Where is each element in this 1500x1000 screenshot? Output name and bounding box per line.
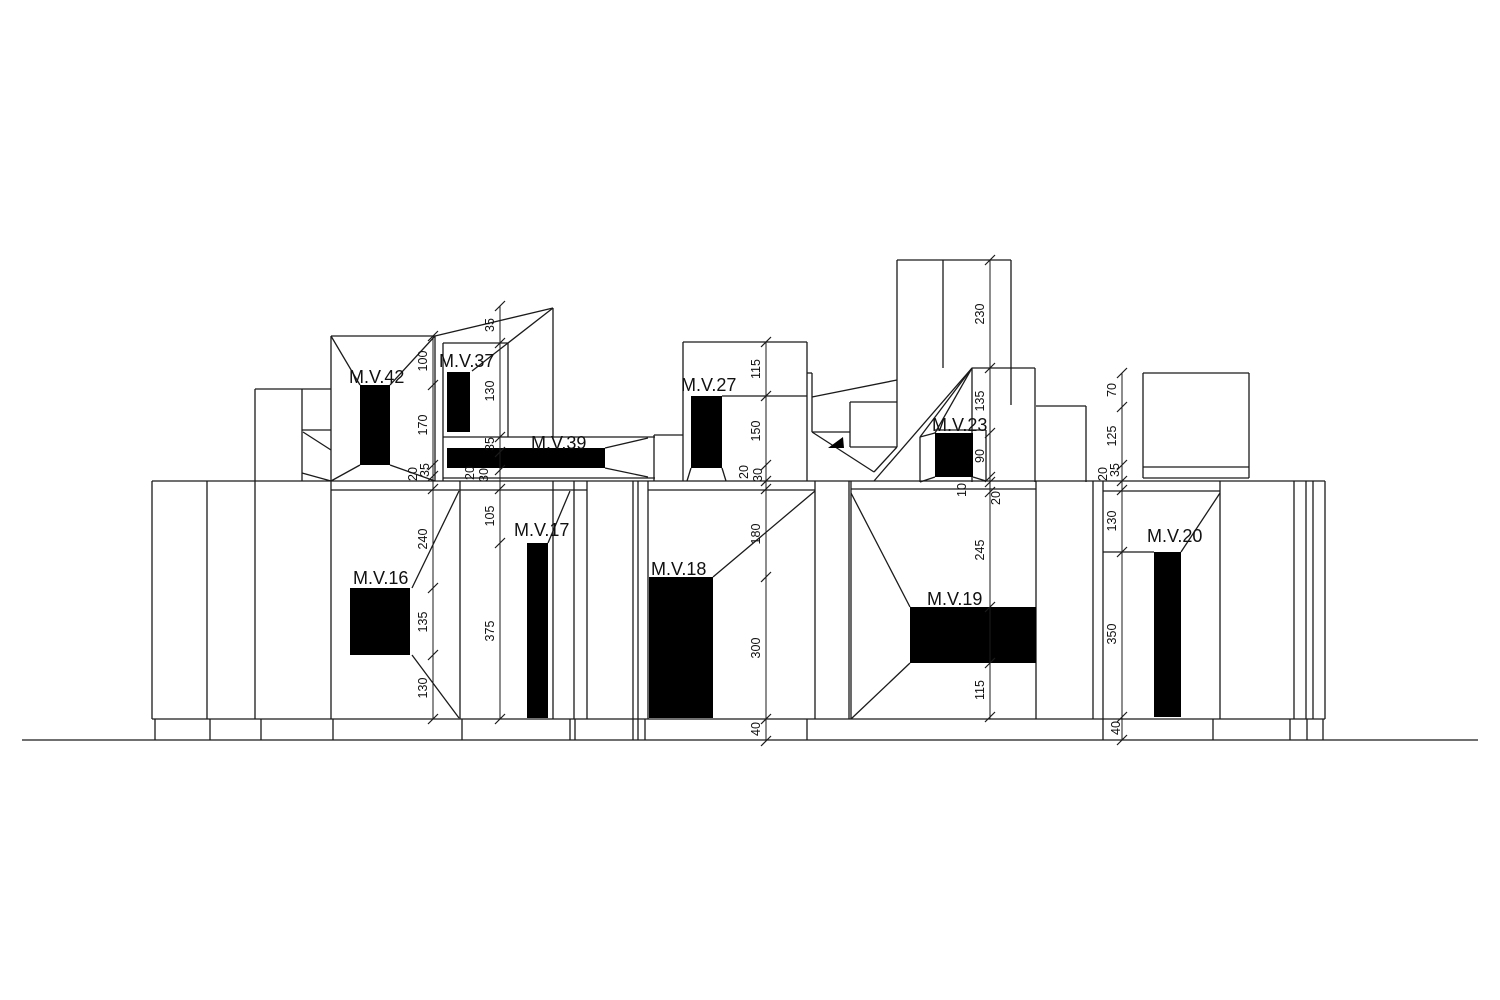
drawing-line [722, 468, 726, 481]
dim-label-chain-mv42-4: 240 [416, 529, 430, 550]
opening-mv16 [350, 588, 410, 655]
dim-label-chain-mv37-1: 130 [483, 381, 497, 402]
drawing-line [812, 380, 897, 397]
dim-label-chain-mv20-5: 350 [1105, 624, 1119, 645]
opening-mv18 [649, 577, 713, 718]
dim-label-chain-mv27-5: 300 [749, 638, 763, 659]
dim-label-chain-mv37-2: 35 [483, 437, 497, 451]
opening-label-mv17: M.V.17 [514, 520, 569, 540]
dim-label-chain-mv23-2: 90 [973, 449, 987, 463]
drawing-line [687, 468, 691, 481]
drawing-line [303, 432, 331, 450]
opening-mv19 [910, 607, 1036, 663]
elevation-drawing: M.V.42M.V.37M.V.39M.V.27M.V.23M.V.16M.V.… [0, 0, 1500, 1000]
opening-label-mv16: M.V.16 [353, 568, 408, 588]
dim-label-chain-mv42-5: 135 [416, 612, 430, 633]
building-outline [22, 260, 1478, 740]
roof-shade-triangle [828, 437, 844, 448]
dim-label-chain-mv27-1: 150 [749, 421, 763, 442]
dim-label-chain-mv23-6: 115 [973, 680, 987, 700]
dim-label-chain-mv27-2: 20 [737, 465, 751, 479]
drawing-line [713, 491, 815, 577]
drawing-line [851, 663, 910, 719]
elevation-sheet: M.V.42M.V.37M.V.39M.V.27M.V.23M.V.16M.V.… [0, 0, 1500, 1000]
opening-label-mv23: M.V.23 [932, 415, 987, 435]
opening-mv37 [447, 372, 470, 432]
opening-label-mv42: M.V.42 [349, 367, 404, 387]
opening-label-mv37: M.V.37 [439, 351, 494, 371]
dim-label-chain-mv23-3: 10 [955, 483, 969, 497]
opening-mv42 [360, 385, 390, 465]
dim-label-chain-mv20-6: 40 [1109, 721, 1123, 735]
dim-label-chain-mv20-2: 35 [1108, 463, 1122, 477]
drawing-line [302, 473, 331, 481]
dim-label-chain-mv42-2: 35 [418, 463, 432, 477]
opening-mv23 [935, 433, 973, 477]
dim-label-chain-mv23-5: 245 [973, 540, 987, 561]
dim-label-chain-mv37-5: 105 [483, 506, 497, 527]
opening-label-mv18: M.V.18 [651, 559, 706, 579]
dim-label-chain-mv27-0: 115 [749, 359, 763, 379]
opening-label-mv27: M.V.27 [681, 375, 736, 395]
dim-label-chain-mv20-0: 70 [1105, 383, 1119, 397]
dim-label-chain-mv27-3: 30 [751, 468, 765, 482]
dim-label-chain-mv27-4: 180 [749, 524, 763, 545]
dim-label-chain-mv20-3: 20 [1096, 467, 1110, 481]
opening-mv20 [1154, 552, 1181, 717]
drawing-line [331, 465, 360, 481]
dim-label-chain-mv42-1: 170 [416, 415, 430, 436]
dim-label-chain-mv23-4: 20 [989, 491, 1003, 505]
dim-label-chain-mv42-6: 130 [416, 678, 430, 699]
drawing-line [851, 493, 910, 607]
drawing-line [605, 468, 648, 477]
dim-label-chain-mv27-6: 40 [749, 722, 763, 736]
dim-label-chain-mv42-3: 20 [406, 467, 420, 481]
opening-mv17 [527, 543, 548, 718]
dim-label-chain-mv37-0: 35 [483, 318, 497, 332]
dim-label-chain-mv37-6: 375 [483, 621, 497, 642]
dim-label-chain-mv20-1: 125 [1105, 426, 1119, 447]
dim-label-chain-mv20-4: 130 [1105, 511, 1119, 532]
dim-label-chain-mv37-4: 30 [477, 468, 491, 482]
dim-label-chain-mv42-0: 100 [416, 351, 430, 372]
opening-label-mv20: M.V.20 [1147, 526, 1202, 546]
dim-label-chain-mv37-3: 20 [463, 466, 477, 480]
opening-mv27 [691, 396, 722, 468]
dim-label-chain-mv23-0: 230 [973, 304, 987, 325]
opening-label-mv39: M.V.39 [531, 433, 586, 453]
drawing-line [605, 438, 648, 448]
opening-label-mv19: M.V.19 [927, 589, 982, 609]
dim-label-chain-mv23-1: 135 [973, 391, 987, 412]
